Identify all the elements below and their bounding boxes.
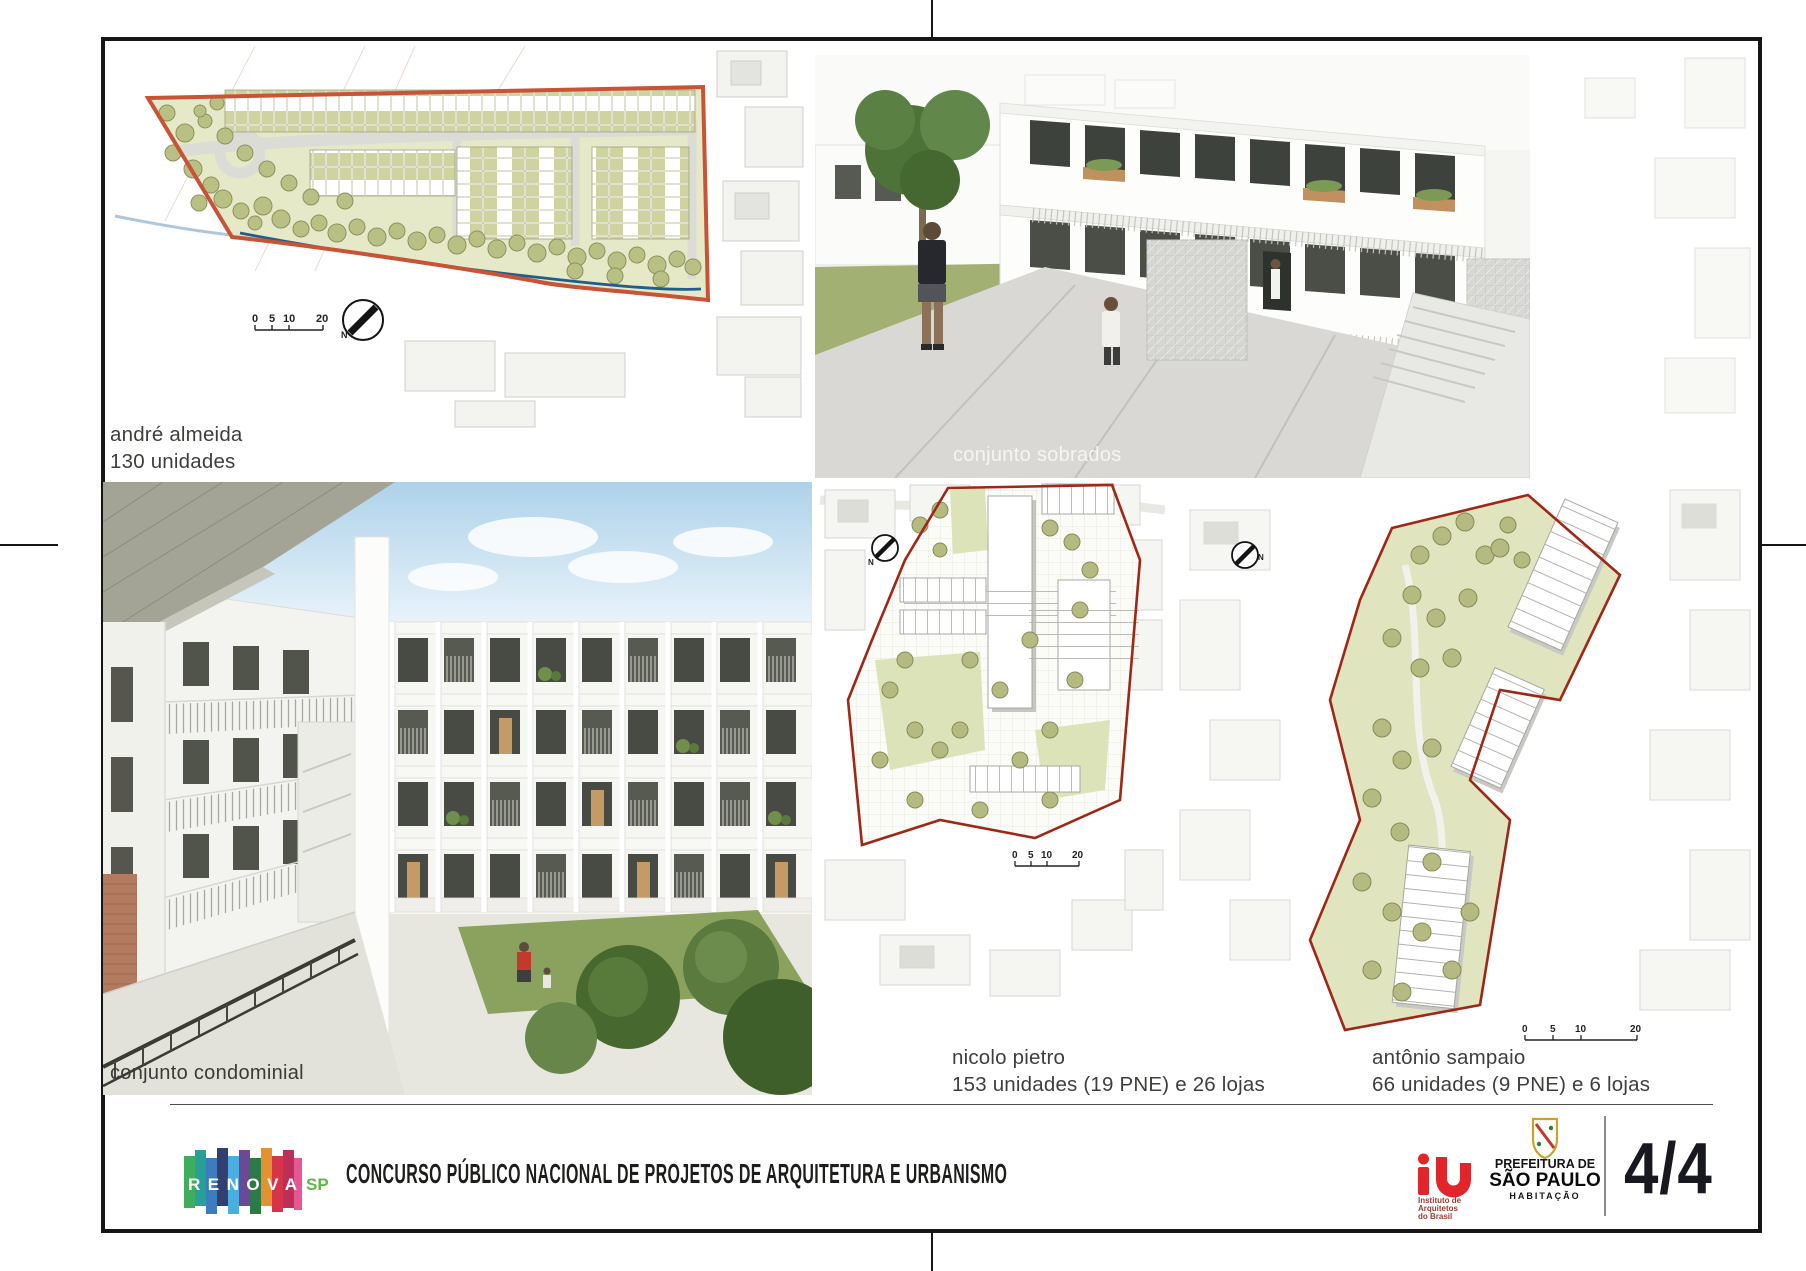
svg-text:5: 5 [1028, 850, 1034, 861]
render-condominial-svg [103, 482, 812, 1095]
label-antonio-sampaio: antônio sampaio 66 unidades (9 PNE) e 6 … [1372, 1044, 1650, 1098]
site-plan-nicolo-svg: N 0 5 10 20 [820, 480, 1165, 1045]
context-top-right-svg [1545, 48, 1760, 428]
stair-tower [298, 722, 356, 922]
footer-vertical-divider [1604, 1116, 1606, 1216]
svg-text:N: N [1258, 553, 1264, 562]
iab-text-line3: do Brasil [1418, 1212, 1452, 1220]
person-in-passage [1271, 259, 1281, 299]
north-arrow-icon: N [341, 300, 383, 340]
svg-text:5: 5 [1550, 1024, 1556, 1035]
competition-board-page: { "sheet": { "page_number": "4/4" }, "fo… [0, 0, 1806, 1271]
bays-floor-2 [398, 710, 796, 754]
label-nicolo-pietro: nicolo pietro 153 unidades (19 PNE) e 26… [952, 1044, 1265, 1098]
crop-mark-top [931, 0, 933, 37]
svg-text:0: 0 [252, 313, 258, 325]
panel-nicolo-pietro-site-plan: N 0 5 10 20 [820, 480, 1165, 1045]
renova-wordmark: RENOVA [188, 1175, 304, 1194]
render-sobrados-svg [815, 55, 1530, 478]
page-number: 4/4 [1624, 1128, 1713, 1210]
site-plan-antonio-svg: N 0 5 10 20 [1170, 480, 1760, 1045]
prefeitura-line1: PREFEITURA DE [1495, 1157, 1595, 1171]
scale-bar: 0 5 10 20 [1522, 1024, 1642, 1040]
renova-sp-text: SP [306, 1175, 329, 1194]
project-name: andré almeida [110, 421, 243, 448]
iab-logo: Instituto de Arquitetos do Brasil [1416, 1150, 1476, 1220]
project-name: antônio sampaio [1372, 1044, 1650, 1071]
prefeitura-line2: SÃO PAULO [1489, 1169, 1601, 1191]
svg-text:20: 20 [1630, 1024, 1642, 1035]
rear-building [388, 622, 812, 914]
renova-sp-logo: RENOVA SP [182, 1148, 337, 1216]
iab-glyph [1418, 1154, 1471, 1198]
textured-block-wall-left [1147, 240, 1247, 360]
crop-mark-bottom [931, 1233, 933, 1271]
svg-text:10: 10 [1575, 1024, 1587, 1035]
svg-text:10: 10 [1041, 850, 1053, 861]
sao-paulo-crest-icon [1533, 1119, 1557, 1158]
svg-text:5: 5 [269, 313, 275, 325]
prefeitura-logo-svg: PREFEITURA DE SÃO PAULO HABITAÇÃO [1486, 1116, 1604, 1216]
bays-floor-3 [398, 782, 796, 826]
panel-antonio-sampaio-site-plan: N 0 5 10 20 [1170, 480, 1760, 1045]
project-units: 130 unidades [110, 448, 243, 475]
creek-light-blue [115, 216, 231, 235]
panel-andre-almeida-site-plan: 0 5 10 20 N [105, 41, 810, 431]
project-name: nicolo pietro [952, 1044, 1265, 1071]
context-top-right [1545, 48, 1760, 428]
scale-bar: 0 5 10 20 [1012, 850, 1084, 866]
bays-floor-4 [398, 854, 796, 898]
svg-text:0: 0 [1522, 1024, 1528, 1035]
footer-separator [170, 1104, 1713, 1105]
svg-text:10: 10 [283, 313, 295, 325]
panel-conjunto-sobrados-render [815, 55, 1530, 478]
panel-conjunto-condominial-render [103, 482, 812, 1095]
project-units: 153 unidades (19 PNE) e 26 lojas [952, 1071, 1265, 1098]
scale-bar: 0 5 10 20 [252, 313, 328, 330]
iab-logo-svg: Instituto de Arquitetos do Brasil [1416, 1150, 1476, 1220]
renova-sp-logo-svg: RENOVA SP [182, 1148, 337, 1216]
prefeitura-sao-paulo-logo: PREFEITURA DE SÃO PAULO HABITAÇÃO [1486, 1116, 1604, 1216]
prefeitura-line3: HABITAÇÃO [1509, 1191, 1580, 1201]
crop-mark-left [0, 544, 58, 546]
svg-text:N: N [868, 558, 874, 567]
north-arrow-icon: N [868, 535, 898, 567]
label-andre-almeida: andré almeida 130 unidades [110, 421, 243, 475]
caption-conjunto-condominial: conjunto condominial [110, 1062, 304, 1085]
svg-text:N: N [341, 330, 348, 340]
sheet-title: CONCURSO PÚBLICO NACIONAL DE PROJETOS DE… [346, 1158, 1007, 1190]
site-plan-andre-almeida-svg: 0 5 10 20 N [105, 41, 810, 431]
project-units: 66 unidades (9 PNE) e 6 lojas [1372, 1071, 1650, 1098]
svg-text:20: 20 [1072, 850, 1084, 861]
caption-conjunto-sobrados: conjunto sobrados [953, 444, 1122, 467]
bays-floor-1 [398, 638, 796, 682]
svg-text:20: 20 [316, 313, 328, 325]
svg-text:0: 0 [1012, 850, 1018, 861]
